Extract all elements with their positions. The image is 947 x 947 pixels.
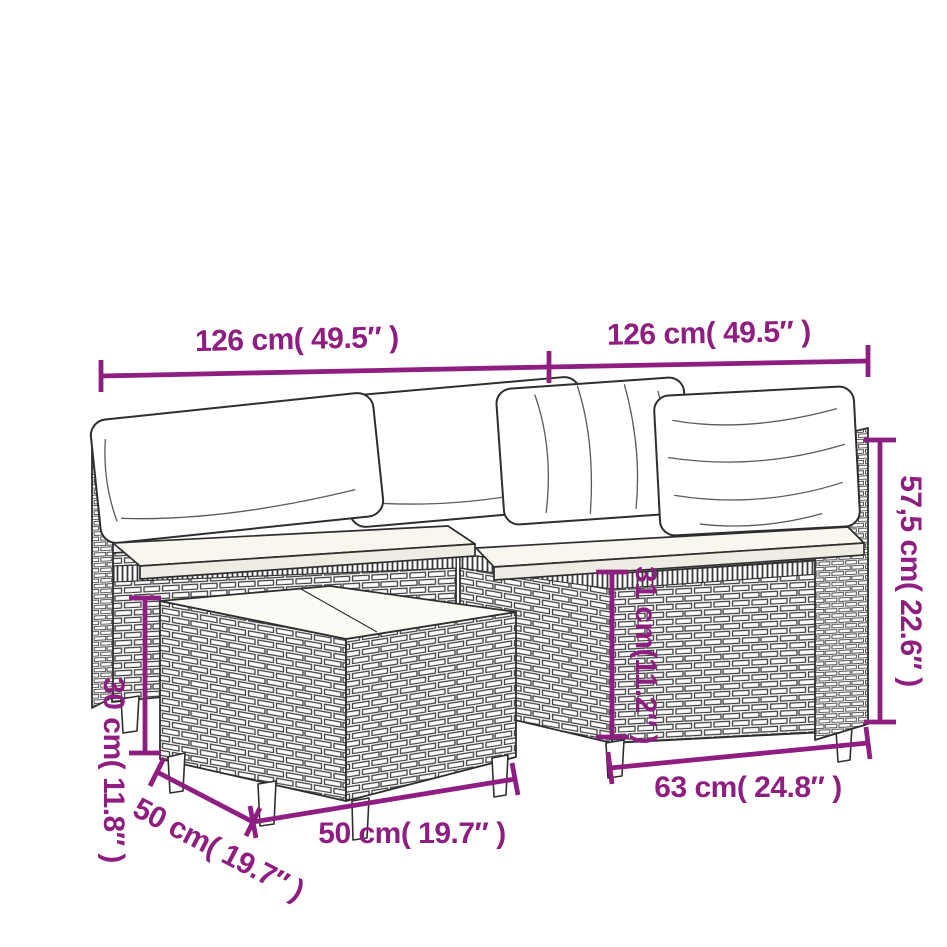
dim-line bbox=[610, 743, 868, 768]
dim-line bbox=[549, 361, 868, 367]
dim-label-seat-height: 31 cm(11.2″ ) bbox=[629, 566, 662, 744]
dim-label-sofa-right-width: 126 cm( 49.5″ ) bbox=[607, 315, 811, 352]
dim-tick bbox=[250, 806, 256, 838]
table-right-face bbox=[346, 612, 516, 801]
dim-back-height: 57,5 cm( 22.6″ ) bbox=[864, 440, 927, 722]
dim-label-table-depth: 50 cm( 19.7″ ) bbox=[128, 792, 310, 908]
dim-label-sofa-left-width: 126 cm( 49.5″ ) bbox=[195, 321, 399, 358]
dim-label-seat-depth: 63 cm( 24.8″ ) bbox=[654, 771, 841, 804]
diagram-canvas: 126 cm( 49.5″ ) 126 cm( 49.5″ ) 57,5 cm(… bbox=[0, 0, 947, 947]
dim-sofa-right-width: 126 cm( 49.5″ ) bbox=[549, 315, 868, 377]
back-pillow bbox=[89, 391, 384, 544]
back-pillows bbox=[89, 376, 860, 545]
dim-tick bbox=[866, 727, 870, 759]
dim-sofa-left-width: 126 cm( 49.5″ ) bbox=[101, 321, 549, 392]
back-pillow bbox=[653, 386, 860, 536]
table-foot bbox=[492, 755, 508, 797]
dim-label-table-height: 30 cm( 11.8″ ) bbox=[97, 677, 130, 863]
sofa-set-dimension-illustration: 126 cm( 49.5″ ) 126 cm( 49.5″ ) 57,5 cm(… bbox=[0, 0, 947, 947]
dim-line bbox=[101, 367, 549, 376]
dim-label-back-height: 57,5 cm( 22.6″ ) bbox=[894, 475, 927, 687]
dim-tick bbox=[512, 763, 518, 795]
dim-label-table-width: 50 cm( 19.7″ ) bbox=[318, 817, 505, 850]
